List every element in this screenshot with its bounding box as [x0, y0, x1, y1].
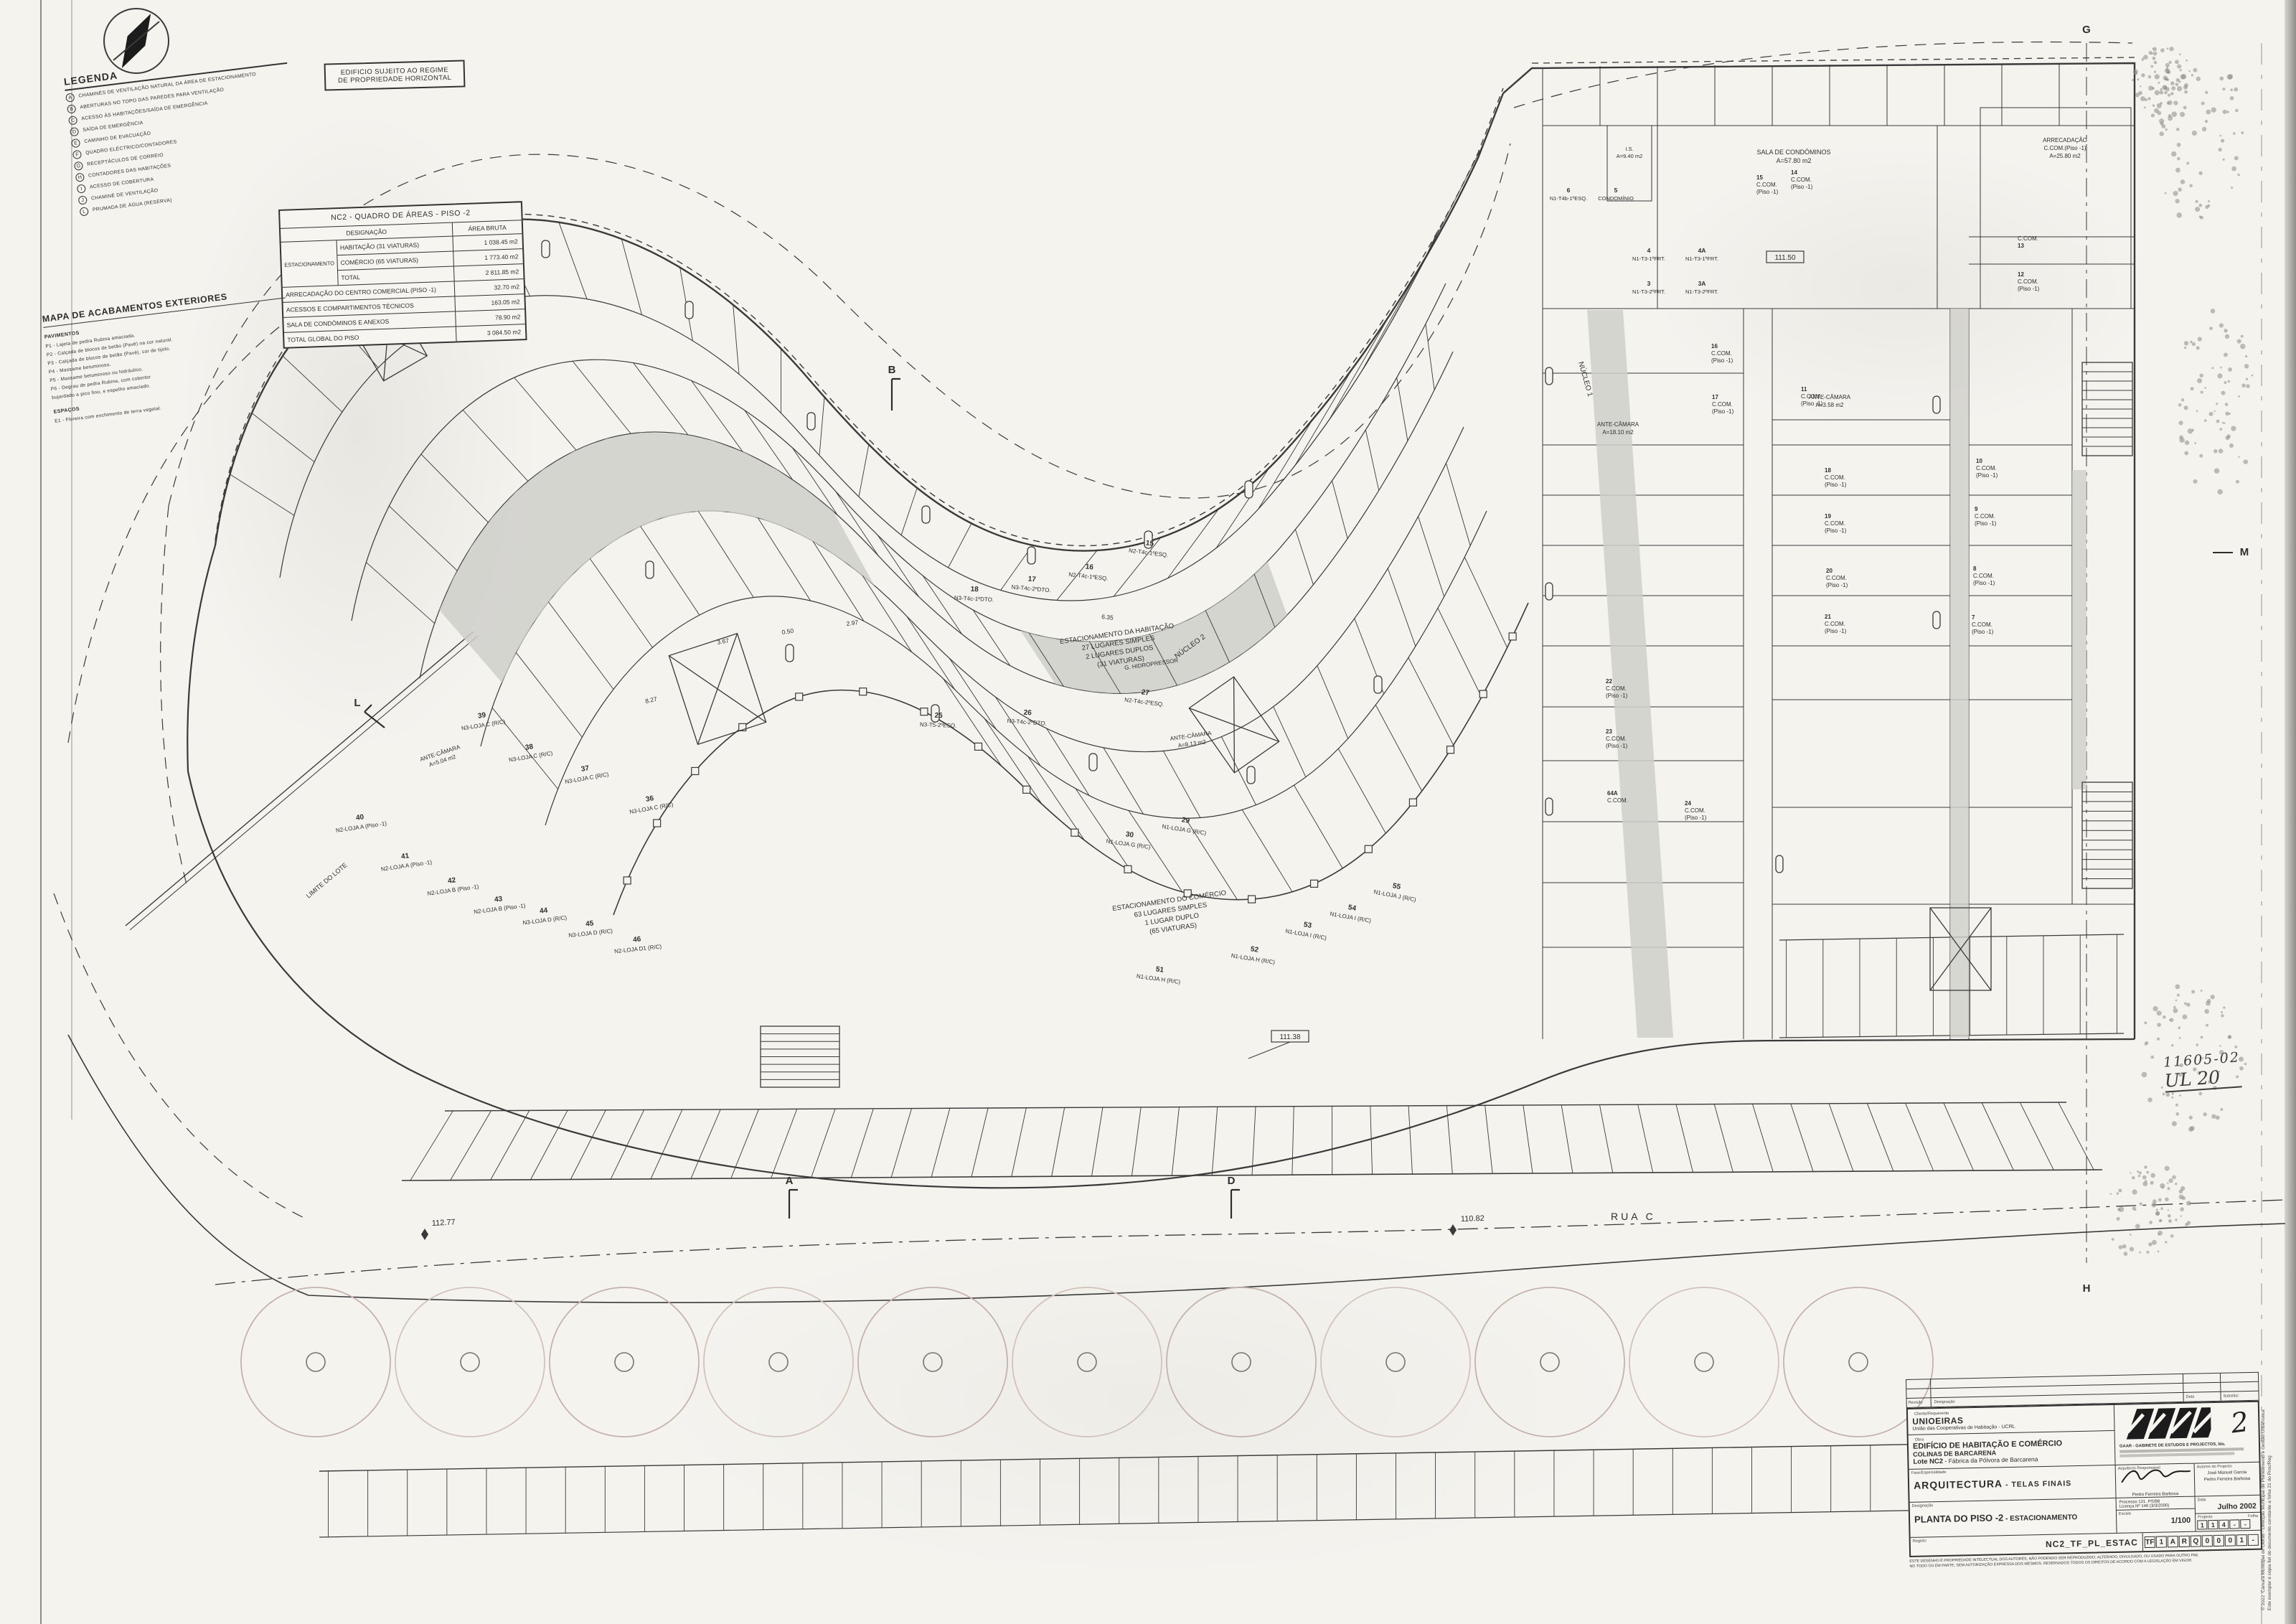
svg-text:H: H: [2083, 1282, 2091, 1295]
parking-summary-comercio: ESTACIONAMENTO DO COMÉRCIO 63 LUGARES SI…: [1112, 889, 1231, 941]
svg-text:N1-LOJA J (R/C): N1-LOJA J (R/C): [1373, 888, 1417, 903]
svg-text:C.COM.: C.COM.: [1975, 513, 1995, 520]
svg-text:N2-LOJA A (Piso -1): N2-LOJA A (Piso -1): [380, 859, 432, 873]
svg-text:CONDOMÍNIO: CONDOMÍNIO: [1598, 195, 1634, 202]
svg-text:(Piso -1): (Piso -1): [1801, 400, 1823, 407]
svg-text:20: 20: [1826, 568, 1832, 574]
project-number-field: ProjectoFolha 1 1 4 - -: [2196, 1512, 2261, 1531]
signature: [2117, 1465, 2194, 1487]
svg-text:C.COM.: C.COM.: [1607, 797, 1628, 804]
svg-text:13: 13: [2018, 243, 2024, 249]
svg-text:C.COM.: C.COM.: [1606, 685, 1627, 692]
legend-key-icon: H: [75, 173, 85, 182]
svg-text:64A: 64A: [1607, 790, 1618, 797]
svg-text:N1-LOJA I (R/C): N1-LOJA I (R/C): [1330, 911, 1372, 924]
svg-text:N3-T5-2ºESQ.: N3-T5-2ºESQ.: [920, 721, 957, 729]
svg-text:A=18.10 m2: A=18.10 m2: [1602, 429, 1634, 436]
legend-key-icon: B: [67, 104, 76, 113]
svg-text:C.COM.: C.COM.: [1825, 474, 1845, 481]
street-dimensions: 112.77 110.82: [421, 1214, 1485, 1240]
svg-text:(Piso -1): (Piso -1): [1972, 629, 1994, 635]
svg-text:111.50: 111.50: [1774, 254, 1796, 262]
svg-text:N1-T3-1ºFRT.: N1-T3-1ºFRT.: [1685, 255, 1718, 262]
svg-text:(Piso -1): (Piso -1): [1606, 743, 1628, 749]
svg-text:5: 5: [1614, 187, 1618, 194]
svg-text:3.67: 3.67: [717, 637, 730, 646]
wing-corridor: [1950, 309, 1969, 1038]
svg-text:C.COM.: C.COM.: [1711, 350, 1732, 357]
svg-text:110.82: 110.82: [1461, 1214, 1485, 1224]
edge-corridor: [2072, 470, 2086, 789]
svg-text:27: 27: [1141, 688, 1150, 697]
svg-text:(Piso -1): (Piso -1): [1791, 184, 1813, 190]
nucleo1-corridor: [1587, 310, 1673, 1038]
svg-text:A=9.40 m2: A=9.40 m2: [1617, 153, 1642, 159]
svg-text:N3-LOJA C (R/C): N3-LOJA C (R/C): [565, 771, 610, 785]
svg-text:C.COM.: C.COM.: [1756, 182, 1777, 188]
svg-text:4: 4: [1647, 247, 1651, 254]
legend-key-icon: I: [77, 184, 86, 193]
register-field: Registo NC2_TF_PL_ESTAC: [1911, 1533, 2143, 1556]
svg-text:21: 21: [1825, 614, 1831, 620]
parking-stall-dividers: [230, 144, 2117, 1537]
svg-text:39: 39: [477, 711, 486, 721]
svg-text:8.27: 8.27: [644, 695, 658, 705]
firm-field: 2 GAAR - GABINETE DE ESTUDOS E PROJECTOS…: [2114, 1402, 2259, 1465]
svg-text:L: L: [354, 697, 360, 709]
svg-text:N2-LOJA B (Piso -1): N2-LOJA B (Piso -1): [474, 902, 526, 915]
legend-key-icon: L: [80, 207, 89, 216]
svg-text:4A: 4A: [1698, 247, 1706, 254]
svg-text:N1-T3-1ºFRT.: N1-T3-1ºFRT.: [1632, 255, 1665, 262]
svg-text:44: 44: [540, 906, 549, 915]
svg-text:53: 53: [1303, 921, 1312, 930]
svg-text:C.COM.: C.COM.: [1972, 621, 1992, 628]
svg-text:112.77: 112.77: [432, 1218, 456, 1228]
svg-text:54: 54: [1347, 903, 1357, 913]
svg-text:SALA DE CONDÓMINOS: SALA DE CONDÓMINOS: [1756, 149, 1830, 156]
svg-text:A=25.80 m2: A=25.80 m2: [2049, 153, 2081, 159]
svg-text:46: 46: [633, 935, 642, 944]
svg-text:C.COM.: C.COM.: [1791, 177, 1812, 183]
svg-text:51: 51: [1155, 965, 1165, 975]
svg-text:11: 11: [1801, 386, 1807, 393]
areas-table: NC2 - QUADRO DE ÁREAS - PISO -2 DESIGNAÇ…: [278, 201, 527, 349]
svg-text:18: 18: [1825, 467, 1831, 474]
svg-text:N3-LOJA C (R/C): N3-LOJA C (R/C): [461, 718, 506, 732]
svg-text:55: 55: [1392, 882, 1401, 891]
svg-text:N2-T4c-2ºESQ.: N2-T4c-2ºESQ.: [1124, 697, 1165, 708]
legend-key-icon: F: [72, 150, 82, 159]
stair-core-nucleo2: [1189, 677, 1279, 773]
svg-text:111.38: 111.38: [1279, 1033, 1301, 1041]
svg-text:30: 30: [1125, 830, 1134, 840]
svg-text:29: 29: [1181, 816, 1190, 825]
svg-text:12: 12: [2018, 271, 2024, 278]
responsible-architect-field: Arquitecto Responsável Pedro Ferreira Ba…: [2116, 1464, 2196, 1498]
svg-text:ARRECADAÇÃO: ARRECADAÇÃO: [2043, 137, 2087, 144]
svg-text:A: A: [786, 1175, 794, 1187]
svg-text:(Piso -1): (Piso -1): [1826, 582, 1848, 588]
svg-text:N3-LOJA C (R/C): N3-LOJA C (R/C): [508, 750, 553, 764]
svg-text:C.COM.: C.COM.: [1973, 573, 1994, 579]
scale-field: Escala 1/100: [2117, 1508, 2196, 1533]
svg-text:18: 18: [970, 586, 979, 594]
svg-text:N2-LOJA A (Piso -1): N2-LOJA A (Piso -1): [335, 820, 387, 834]
handwritten-reference: 11605-02 UL 20: [2163, 1049, 2241, 1092]
svg-text:N2-T4c-1ºESQ.: N2-T4c-1ºESQ.: [1129, 548, 1169, 559]
svg-text:(Piso -1): (Piso -1): [1975, 520, 1997, 527]
svg-text:N1-T3-2ºFRT.: N1-T3-2ºFRT.: [1685, 288, 1718, 295]
svg-text:N1-LOJA G (R/C): N1-LOJA G (R/C): [1106, 838, 1151, 851]
svg-text:(Piso -1): (Piso -1): [1712, 408, 1734, 415]
svg-text:16: 16: [1711, 343, 1718, 349]
svg-text:0.50: 0.50: [781, 627, 794, 636]
svg-text:C.COM.: C.COM.: [1825, 621, 1845, 627]
svg-text:G: G: [2082, 24, 2091, 36]
svg-text:10: 10: [1976, 458, 1982, 464]
svg-text:15: 15: [1756, 174, 1763, 181]
svg-text:ANTE-CÂMARA: ANTE-CÂMARA: [1597, 421, 1639, 428]
svg-text:N3-LOJA C (R/C): N3-LOJA C (R/C): [629, 801, 674, 815]
svg-text:6: 6: [1567, 187, 1571, 194]
svg-text:(Piso -1): (Piso -1): [1711, 357, 1733, 364]
svg-text:22: 22: [1606, 678, 1612, 685]
municipal-stamp: © 2022 Câmara Municipal de Oeiras - Dire…: [2260, 1374, 2273, 1610]
legend-key-icon: C: [68, 116, 77, 125]
svg-text:17: 17: [1027, 576, 1036, 584]
svg-text:A=57.80 m2: A=57.80 m2: [1777, 157, 1812, 164]
street-trees: [241, 1287, 1933, 1437]
svg-text:C.COM.: C.COM.: [2018, 235, 2038, 242]
svg-text:17: 17: [1712, 394, 1718, 400]
svg-text:42: 42: [447, 876, 456, 886]
date-field: Data Julho 2002: [2196, 1496, 2260, 1513]
svg-text:(Piso -1): (Piso -1): [1606, 693, 1628, 699]
stair-core-nucleo3: [669, 634, 766, 745]
phase-field: Fase/Especialidade ARQUITECTURA - TELAS …: [1909, 1465, 2117, 1502]
svg-text:7: 7: [1972, 614, 1975, 621]
drawing-title-field: Designação PLANTA DO PISO -2 - ESTACIONA…: [1910, 1498, 2117, 1537]
svg-text:I.S.: I.S.: [1625, 146, 1633, 152]
svg-text:25: 25: [934, 712, 943, 720]
legend-key-icon: G: [74, 161, 83, 171]
svg-text:N3-LOJA D (R/C): N3-LOJA D (R/C): [522, 914, 568, 926]
gaar-logo: [2119, 1406, 2211, 1441]
svg-text:45: 45: [585, 919, 595, 928]
svg-text:N1-LOJA G (R/C): N1-LOJA G (R/C): [1162, 823, 1207, 837]
svg-text:43: 43: [494, 895, 504, 903]
register-code-cells: TF1 AR Q0 00 1-: [2143, 1531, 2261, 1551]
svg-text:14: 14: [1791, 169, 1797, 176]
svg-text:37: 37: [580, 764, 590, 774]
svg-text:C.COM.: C.COM.: [1801, 393, 1822, 400]
svg-text:19: 19: [1825, 513, 1831, 520]
svg-text:B: B: [888, 364, 896, 376]
svg-text:24: 24: [1685, 800, 1691, 807]
svg-text:N3-T4c-2ºDTO.: N3-T4c-2ºDTO.: [1007, 718, 1047, 727]
svg-text:N1-LOJA H (R/C): N1-LOJA H (R/C): [1136, 973, 1181, 986]
svg-text:26: 26: [1023, 709, 1032, 718]
svg-text:N1-LOJA I (R/C): N1-LOJA I (R/C): [1285, 928, 1327, 942]
svg-text:(Piso -1): (Piso -1): [1825, 628, 1847, 634]
svg-text:6.35: 6.35: [1101, 613, 1114, 621]
svg-text:(Piso -1): (Piso -1): [1976, 472, 1998, 479]
svg-text:15: 15: [1145, 539, 1154, 548]
areas-group-estacionamento: ESTACIONAMENTO HABITAÇÃO (31 VIATURAS)1 …: [281, 234, 524, 288]
authors-field: Autores do Projecto José Manuel Garcia P…: [2195, 1463, 2260, 1496]
client-field: Cliente/Requerente UNIOEIRAS União das C…: [1908, 1405, 2114, 1435]
project-field: Obra EDIFÍCIO DE HABITAÇÃO E COMÉRCIO CO…: [1909, 1430, 2115, 1469]
svg-text:3A: 3A: [1698, 280, 1706, 287]
svg-text:D: D: [1228, 1175, 1236, 1187]
svg-text:N3-LOJA D (R/C): N3-LOJA D (R/C): [568, 928, 613, 939]
legend-key-icon: E: [71, 139, 80, 148]
svg-text:(Piso -1): (Piso -1): [1973, 580, 1995, 586]
horizontal-property-notice: EDIFICIO SUJEITO AO REGIME DE PROPRIEDAD…: [324, 60, 466, 90]
street-name: RUA C: [1611, 1211, 1656, 1222]
svg-text:(Piso -1): (Piso -1): [1685, 815, 1707, 821]
legend-key-icon: J: [78, 195, 88, 205]
svg-text:2.97: 2.97: [846, 619, 859, 627]
svg-text:(Piso -1): (Piso -1): [2018, 286, 2040, 292]
firm-address-line: [2119, 1452, 2234, 1457]
svg-text:C.COM.: C.COM.: [1976, 465, 1997, 471]
legend-key-icon: D: [70, 127, 79, 136]
svg-text:40: 40: [355, 813, 364, 822]
svg-text:C.COM.: C.COM.: [1606, 736, 1627, 742]
handwritten-sheet-number: 2: [2229, 1406, 2251, 1440]
svg-text:(Piso -1): (Piso -1): [1756, 189, 1779, 195]
svg-text:C.COM.: C.COM.: [1825, 520, 1845, 527]
svg-text:C.COM.: C.COM.: [1685, 807, 1705, 814]
svg-text:C.COM.: C.COM.: [2018, 278, 2038, 285]
svg-text:36: 36: [645, 794, 654, 804]
svg-text:N3-T4c-2ºDTO.: N3-T4c-2ºDTO.: [1011, 584, 1051, 594]
svg-text:N1-T4b-1ºESQ.: N1-T4b-1ºESQ.: [1550, 195, 1587, 202]
svg-text:C.COM.: C.COM.: [1712, 401, 1733, 408]
apartment-labels: 6N1-T4b-1ºESQ. 5CONDOMÍNIO 4N1-T3-1ºFRT.…: [1550, 187, 1718, 295]
svg-text:16: 16: [1085, 563, 1094, 571]
legend-key-icon: A: [65, 93, 75, 102]
door-symbols: [398, 240, 1940, 873]
svg-text:C.COM.: C.COM.: [1826, 575, 1847, 581]
svg-text:3: 3: [1647, 280, 1651, 287]
legend: LEGENDA ACHAMINÉS DE VENTILAÇÃO NATURAL …: [63, 49, 303, 217]
svg-text:M: M: [2240, 546, 2249, 558]
stair-hatching: [761, 362, 2132, 1087]
title-block: Revisão Designação Data Substitui Client…: [1906, 1372, 2262, 1569]
svg-text:N1-T3-2ºFRT.: N1-T3-2ºFRT.: [1632, 288, 1665, 295]
svg-text:52: 52: [1250, 945, 1259, 954]
svg-text:C.COM.(Piso -1): C.COM.(Piso -1): [2043, 145, 2086, 151]
svg-text:N2-LOJA D1 (R/C): N2-LOJA D1 (R/C): [614, 943, 662, 954]
svg-text:23: 23: [1606, 728, 1612, 735]
svg-text:8: 8: [1973, 565, 1977, 572]
drawing-sheet: 111.50 111.38 112.77 110.82 3.67 0.50 2.…: [0, 0, 2296, 1624]
svg-text:41: 41: [400, 852, 410, 861]
svg-text:38: 38: [524, 743, 534, 752]
svg-text:N2-T4c-1ºESQ.: N2-T4c-1ºESQ.: [1068, 571, 1109, 582]
svg-text:9: 9: [1975, 506, 1978, 512]
svg-text:N1-LOJA H (R/C): N1-LOJA H (R/C): [1231, 952, 1276, 966]
svg-text:(Piso -1): (Piso -1): [1825, 527, 1847, 534]
street-centerline: [215, 1200, 2285, 1285]
svg-text:(Piso -1): (Piso -1): [1825, 482, 1847, 488]
svg-text:N2-LOJA B (Piso -1): N2-LOJA B (Piso -1): [427, 883, 479, 897]
lot-edge-label: LIMITE DO LOTE: [305, 861, 349, 899]
